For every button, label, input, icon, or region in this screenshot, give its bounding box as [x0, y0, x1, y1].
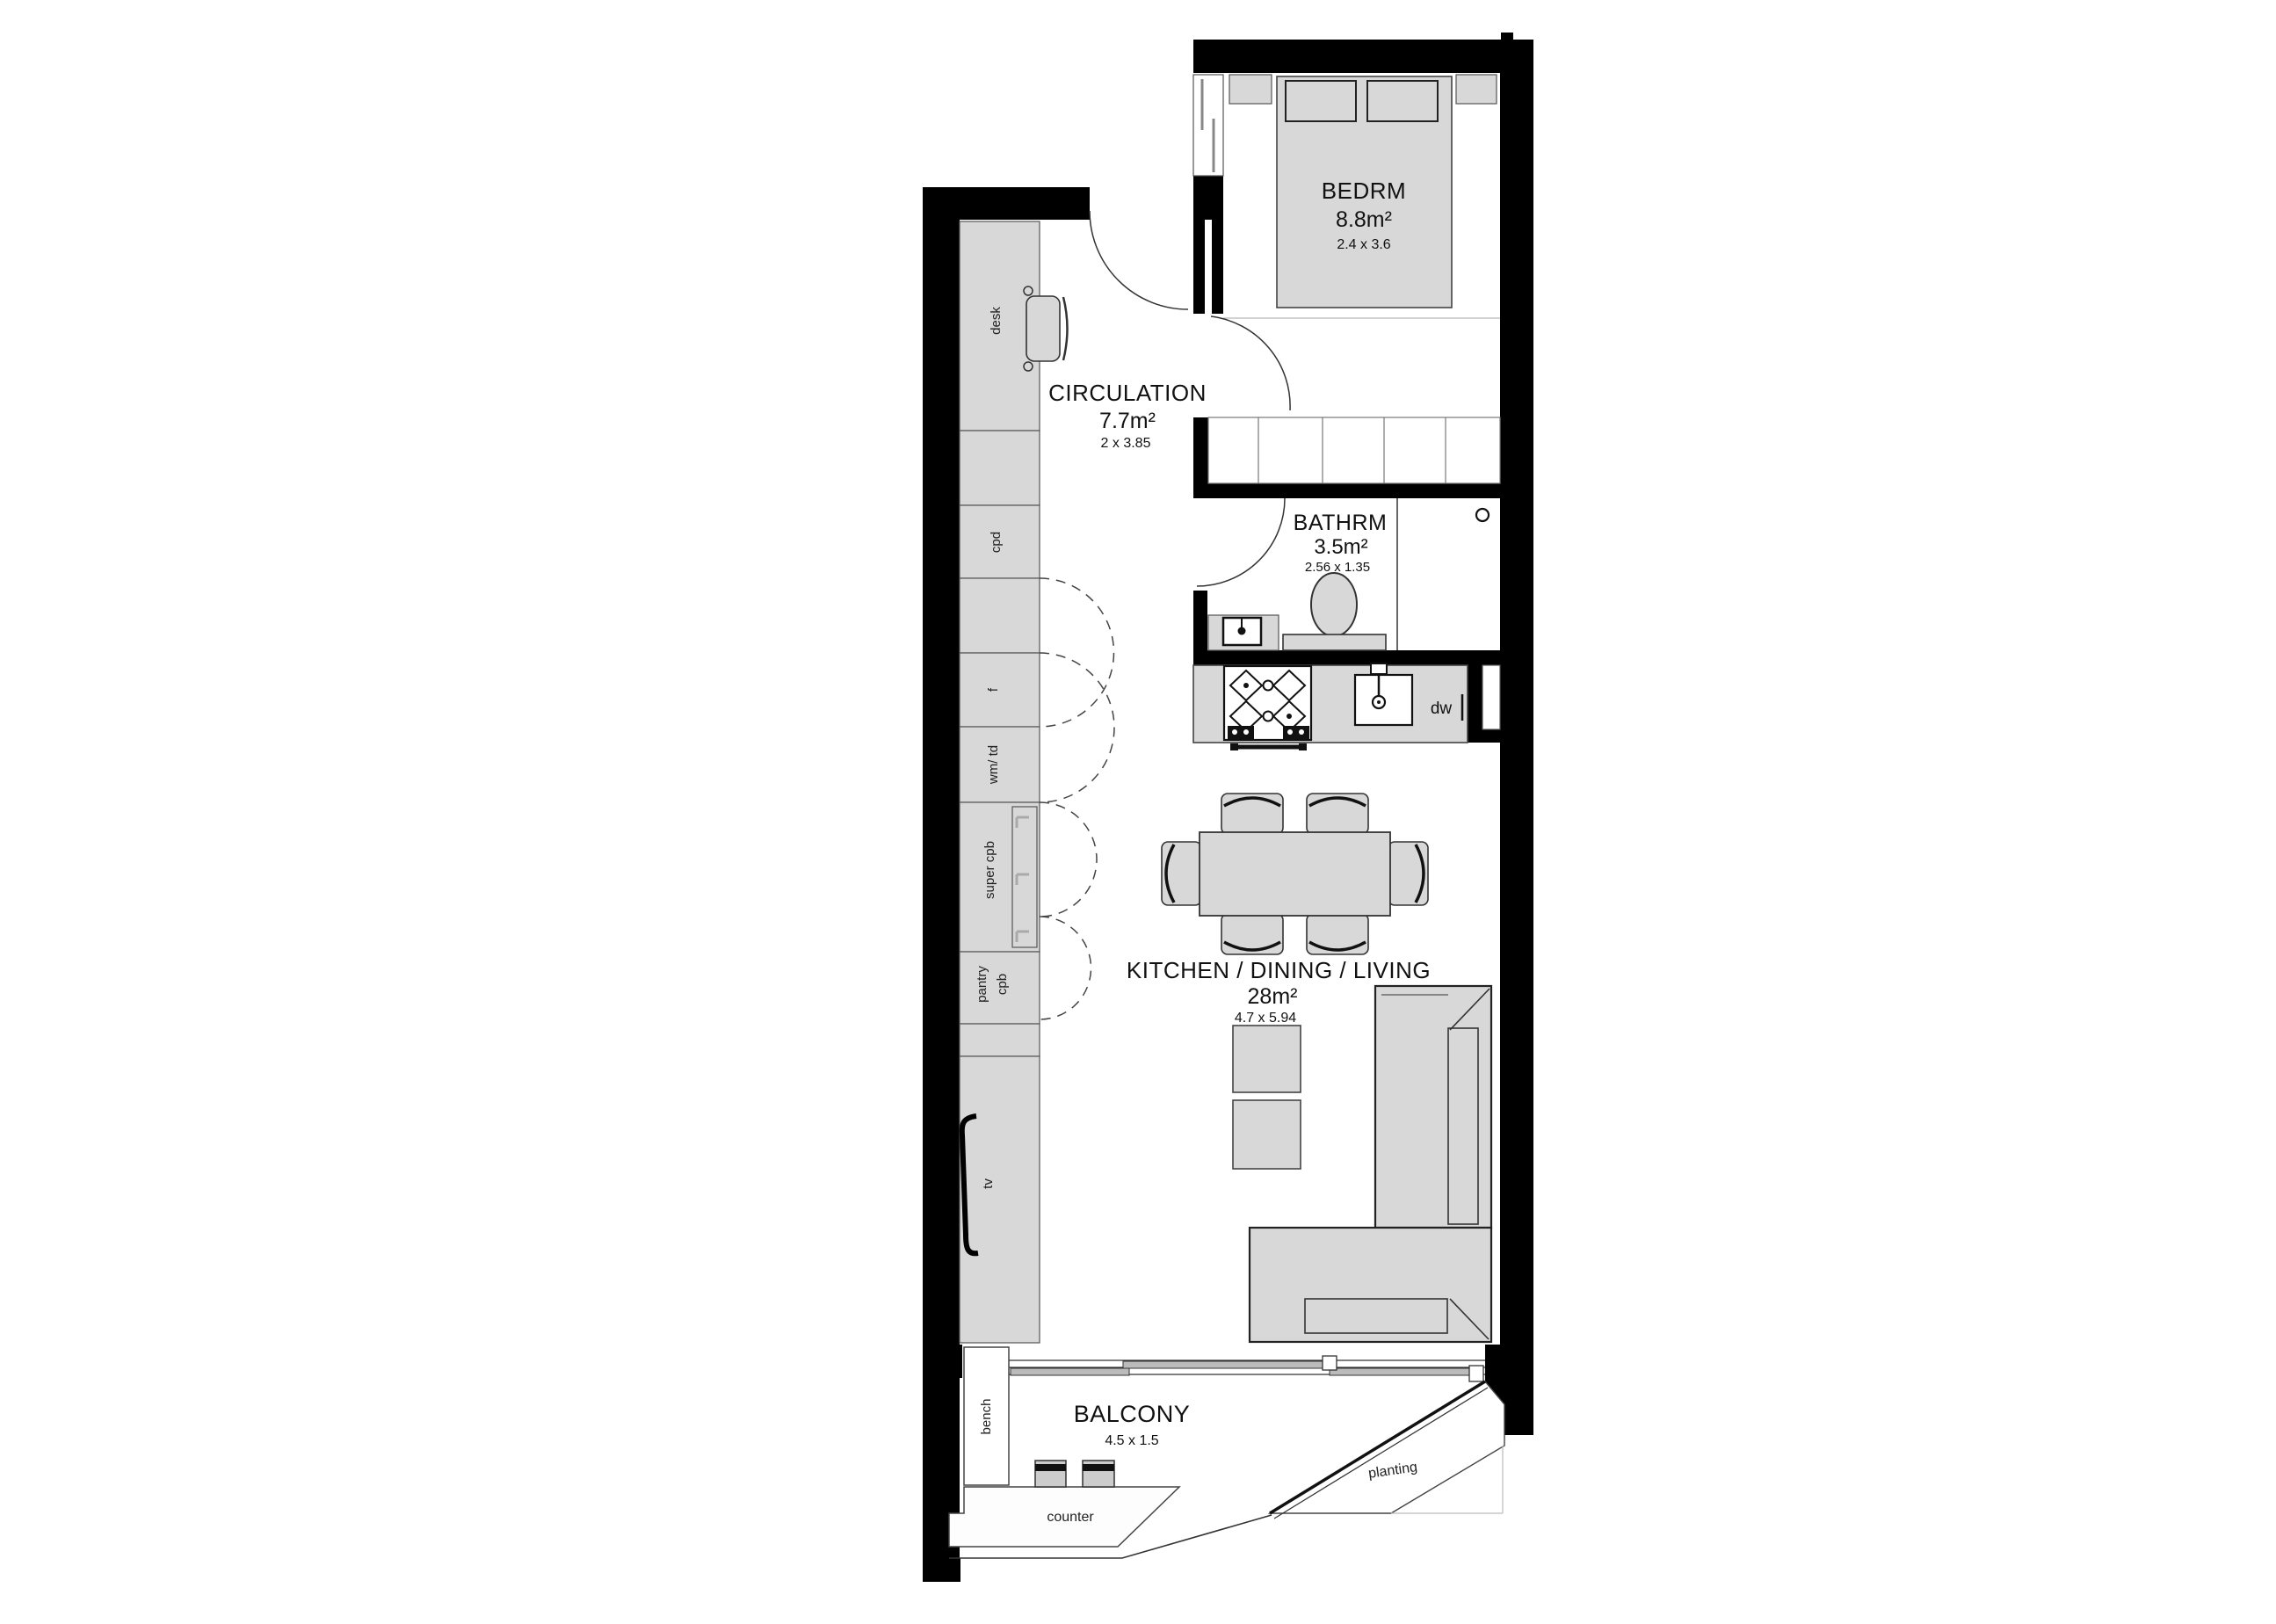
- dining-chair-bottom-left: [1221, 914, 1283, 954]
- slider-panel-3: [1330, 1368, 1483, 1375]
- balcony-name: BALCONY: [1074, 1401, 1191, 1427]
- pocket-door-track: [1205, 220, 1212, 314]
- desk-label: desk: [989, 307, 1004, 335]
- bathroom-dims: 2.56 x 1.35: [1305, 560, 1370, 575]
- stove-knob: [1243, 729, 1249, 735]
- pantry-label-1: pantry: [975, 966, 989, 1003]
- pillow-right: [1367, 81, 1438, 121]
- wall-niche-bottom: [1482, 729, 1500, 743]
- dining-table: [1200, 832, 1390, 916]
- oven-handle-cap: [1230, 743, 1238, 750]
- cabinet-door-arc-4: [1040, 917, 1091, 1019]
- circulation-area: 7.7m²: [1099, 409, 1156, 433]
- living-area: 28m²: [1248, 984, 1298, 1009]
- kitchen-faucet-base: [1371, 663, 1387, 674]
- bedroom-door-arc: [1211, 316, 1290, 410]
- stove-knob: [1299, 729, 1304, 735]
- laundry-label: wm/ td: [986, 745, 1001, 785]
- living-dims: 4.7 x 5.94: [1235, 1011, 1296, 1026]
- slider-handle-2: [1469, 1366, 1483, 1381]
- balcony: bench counter planting BALCONY 4.5 x 1.5: [949, 1347, 1504, 1558]
- bench-label: bench: [979, 1399, 994, 1435]
- shower-drain: [1476, 509, 1489, 521]
- oven-handle-cap: [1299, 743, 1307, 750]
- kitchen-niche: [1482, 665, 1500, 729]
- bedroom-name: BEDRM: [1322, 178, 1406, 204]
- bathroom-area: 3.5m²: [1314, 535, 1367, 559]
- sofa-base-cushion: [1305, 1299, 1447, 1333]
- dining: [1162, 794, 1428, 954]
- wall-left-foot: [949, 1558, 960, 1582]
- wardrobe: [1208, 417, 1500, 483]
- cabinet-blank-1: [960, 431, 1040, 505]
- tv-cabinet: [960, 1056, 1040, 1343]
- slider-panel-1: [1011, 1368, 1129, 1375]
- balcony-sliding-door: [1009, 1356, 1485, 1381]
- wall-wardrobe-bottom: [1193, 483, 1500, 498]
- balcony-dims: 4.5 x 1.5: [1105, 1433, 1158, 1448]
- entry-door-arc: [1090, 211, 1188, 309]
- cabinet-blank-2: [960, 578, 1040, 653]
- slider-handle-1: [1323, 1356, 1337, 1370]
- dining-chair-bottom-right: [1307, 914, 1368, 954]
- cabinet-door-arc-3: [1040, 802, 1097, 917]
- stool-1-back: [1035, 1464, 1066, 1471]
- toilet-bowl: [1311, 573, 1357, 636]
- stove-burner-dot: [1287, 714, 1292, 719]
- living: KITCHEN / DINING / LIVING 28m² 4.7 x 5.9…: [1127, 957, 1491, 1342]
- wall-bedroom-top: [1193, 40, 1533, 73]
- toilet-cistern: [1283, 634, 1386, 650]
- cabinet-blank-3: [960, 1024, 1040, 1056]
- bedroom-dims: 2.4 x 3.6: [1337, 237, 1390, 252]
- desk-chair-seat: [1026, 296, 1060, 361]
- wardrobe-body: [1208, 417, 1500, 483]
- bathroom: BATHRM 3.5m² 2.56 x 1.35: [1197, 498, 1489, 650]
- desk-chair-back: [1063, 297, 1068, 360]
- nightstand-right: [1456, 75, 1497, 104]
- bedroom-area: 8.8m²: [1336, 207, 1392, 232]
- stove-burner-dot: [1243, 683, 1249, 688]
- dishwasher-label: dw: [1431, 700, 1453, 718]
- floor-plan-page: BEDRM 8.8m² 2.4 x 3.6 CIRCULATION 7.7m² …: [0, 0, 2276, 1624]
- wall-bath-left: [1193, 591, 1207, 650]
- stove-knob: [1287, 729, 1293, 735]
- dining-chair-top-right: [1307, 794, 1368, 834]
- dining-chair-top-left: [1221, 794, 1283, 834]
- pillow-left: [1286, 81, 1356, 121]
- vanity-faucet: [1238, 627, 1246, 635]
- bathroom-door-arc: [1197, 498, 1285, 586]
- wall-wardrobe-post: [1193, 417, 1208, 483]
- tv-label: tv: [981, 1178, 996, 1189]
- cupboard-label: cpd: [989, 532, 1004, 553]
- pantry-label-2: cpb: [995, 974, 1010, 995]
- circulation-name: CIRCULATION: [1048, 380, 1207, 406]
- stove-knob: [1232, 729, 1237, 735]
- coffee-table-2: [1233, 1100, 1301, 1169]
- coffee-table-1: [1233, 1026, 1301, 1092]
- stove-knob-plate-left: [1228, 726, 1254, 739]
- wall-top-tick: [1501, 33, 1513, 40]
- circulation-dims: 2 x 3.85: [1101, 436, 1151, 451]
- bedroom-window: [1193, 75, 1223, 176]
- kitchen-faucet-dot: [1377, 700, 1381, 704]
- counter-label: counter: [1047, 1510, 1094, 1525]
- bathroom-name: BATHRM: [1294, 511, 1388, 535]
- living-name: KITCHEN / DINING / LIVING: [1127, 957, 1431, 983]
- nightstand-left: [1229, 75, 1272, 104]
- cabinet-door-arc-1: [1040, 578, 1114, 727]
- cabinet-door-arc-2: [1040, 653, 1114, 802]
- super-cupboard-label: super cpb: [982, 841, 997, 899]
- wall-right: [1500, 40, 1533, 1345]
- slider-panel-2: [1123, 1361, 1334, 1368]
- sofa-chaise-arm: [1448, 1028, 1478, 1224]
- wall-bath-bottom: [1193, 650, 1500, 665]
- stool-2-back: [1083, 1464, 1114, 1471]
- circulation: CIRCULATION 7.7m² 2 x 3.85: [1048, 211, 1207, 451]
- floor-plan-drawing: BEDRM 8.8m² 2.4 x 3.6 CIRCULATION 7.7m² …: [0, 0, 2276, 1624]
- wall-balcony-stub: [949, 1345, 962, 1378]
- kitchen: dw: [1193, 663, 1500, 750]
- stove-knob-plate-right: [1283, 726, 1309, 739]
- bedroom: BEDRM 8.8m² 2.4 x 3.6: [1193, 75, 1500, 410]
- wall-counter-divider: [1468, 663, 1482, 743]
